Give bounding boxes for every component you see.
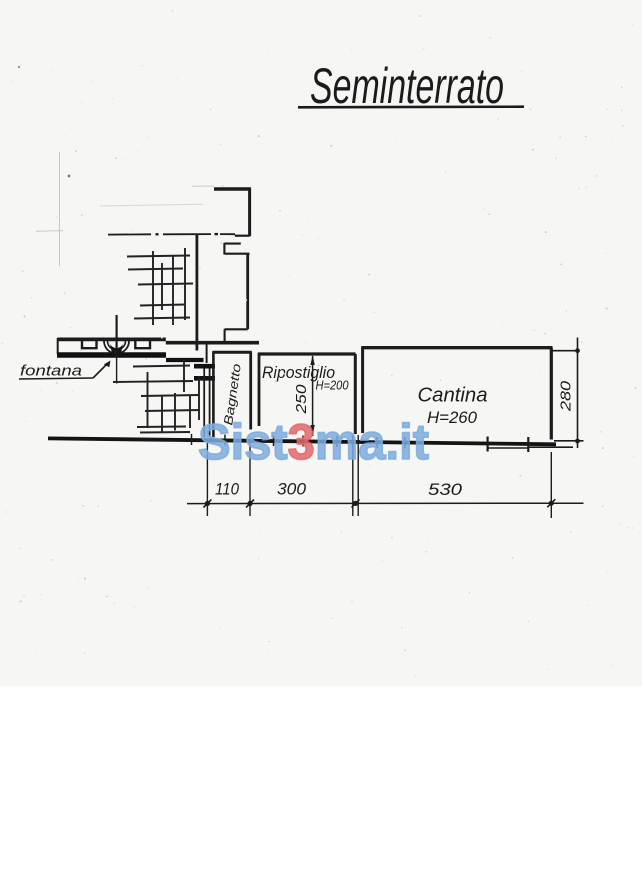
- svg-text:fontana: fontana: [20, 363, 82, 380]
- svg-text:H=260: H=260: [427, 408, 478, 427]
- svg-text:300: 300: [277, 481, 307, 499]
- svg-text:Sist3ma.it: Sist3ma.it: [198, 414, 429, 470]
- svg-text:110: 110: [215, 481, 240, 499]
- svg-text:Cantina: Cantina: [418, 385, 488, 407]
- svg-text:280: 280: [558, 380, 575, 412]
- svg-text:250: 250: [293, 384, 310, 415]
- svg-text:H=200: H=200: [316, 379, 349, 393]
- svg-text:530: 530: [428, 480, 463, 499]
